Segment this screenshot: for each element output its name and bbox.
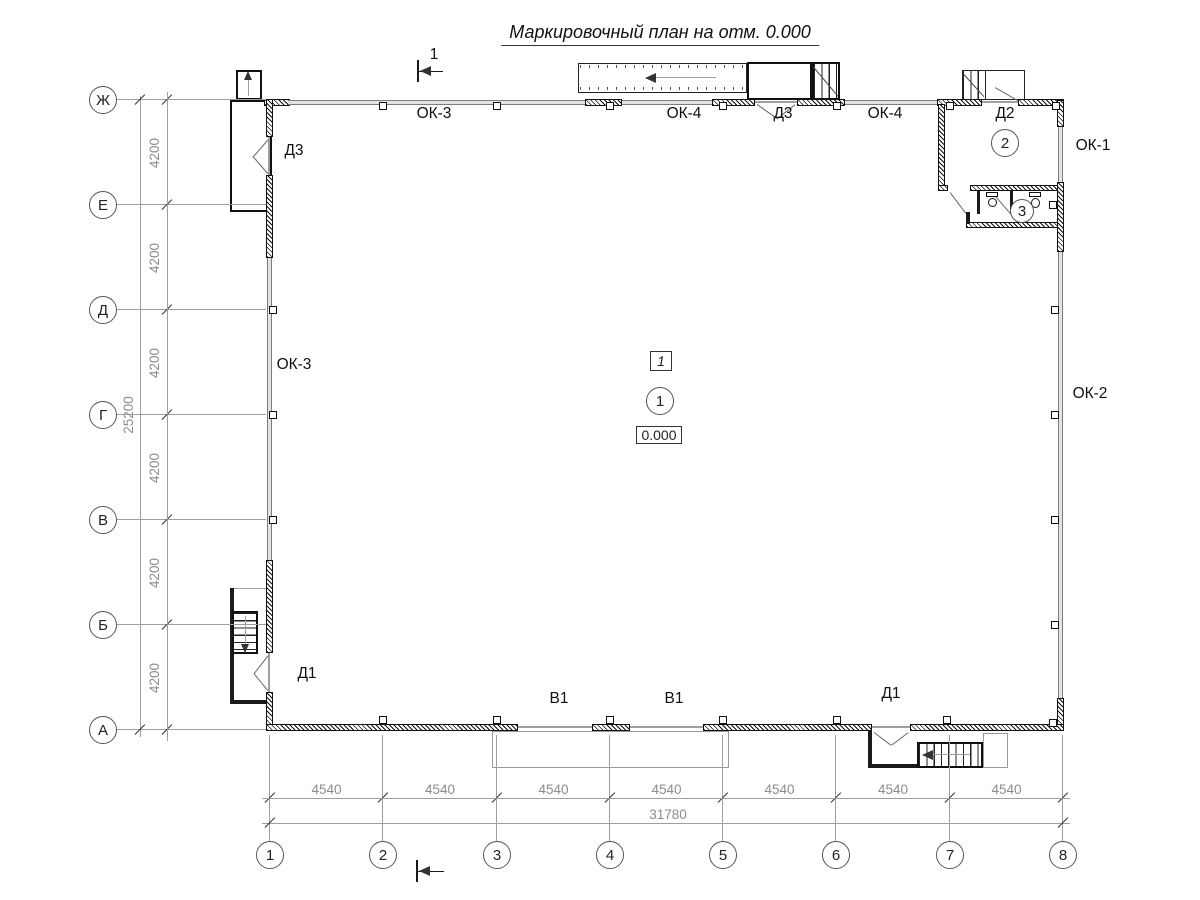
axis-col-bubble: 3: [483, 841, 511, 869]
label-d2-top: Д2: [995, 105, 1014, 123]
dock-platform: [747, 62, 812, 100]
door-leaf-d1-bottom: [891, 732, 909, 746]
door-threshold: [268, 137, 270, 175]
dim-col-spacing: 4540: [863, 781, 923, 799]
gate-threshold-v1: [518, 726, 592, 728]
column-marker: [269, 411, 277, 419]
column-marker: [493, 716, 501, 724]
dim-line-cols-total: [262, 823, 1070, 824]
dim-row-spacing: 4200: [146, 236, 164, 280]
column-marker: [493, 102, 501, 110]
dim-col-spacing: 4540: [297, 781, 357, 799]
label-d1-right: Д1: [881, 685, 900, 703]
dock-left-arrow-icon: [645, 73, 656, 83]
axis-row-bubble: А: [89, 716, 117, 744]
axis-row-bubble: Д: [89, 296, 117, 324]
label-ok1-right: ОК-1: [1076, 137, 1111, 155]
wall-pier: [910, 724, 1064, 731]
wall-pier: [592, 724, 630, 731]
axis-row-bubble: Е: [89, 191, 117, 219]
axis-col-line: [382, 735, 383, 841]
loading-dock-edge-ticks: [580, 65, 745, 68]
dim-col-spacing: 4540: [410, 781, 470, 799]
dim-row-spacing: 4200: [146, 551, 164, 595]
axis-col-bubble: 5: [709, 841, 737, 869]
door-threshold: [268, 653, 270, 692]
stairs-br-platform: [983, 733, 1008, 768]
section-arrow-icon: [419, 866, 430, 876]
axis-col-bubble: 1: [256, 841, 284, 869]
wall-pier: [1057, 182, 1064, 252]
axis-col-bubble: 7: [936, 841, 964, 869]
window-band-ok1-right: [1058, 127, 1063, 182]
wc-door-leaf: [949, 192, 966, 214]
section-arrow-icon: [420, 66, 431, 76]
room2-south-wall: [938, 185, 948, 191]
axis-row-bubble: В: [89, 506, 117, 534]
wall-pier: [266, 99, 273, 137]
column-marker: [1051, 621, 1059, 629]
door-threshold: [872, 726, 910, 728]
wall-pier: [266, 175, 273, 258]
door-leaf-d1-left: [254, 673, 269, 691]
axis-col-line: [949, 735, 950, 841]
drawing-title: Маркировочный план на отм. 0.000: [501, 22, 819, 46]
window-band-ok2-right: [1058, 252, 1063, 698]
stairs-br-left-arrow-icon: [922, 750, 933, 760]
label-d3-top: Д3: [773, 105, 792, 123]
column-marker: [269, 306, 277, 314]
loading-dock-edge-ticks: [580, 87, 745, 90]
room2-west-wall: [938, 104, 945, 191]
column-marker: [606, 102, 614, 110]
axis-col-bubble: 8: [1049, 841, 1077, 869]
label-ok3-top: ОК-3: [417, 105, 452, 123]
section-mark-label: 1: [430, 46, 439, 64]
column-marker: [1051, 306, 1059, 314]
column-marker: [946, 102, 954, 110]
axis-col-line: [835, 735, 836, 841]
column-marker: [719, 716, 727, 724]
dock-arrow-shaft: [652, 77, 716, 78]
label-v1-right: В1: [665, 690, 684, 708]
wall-pier: [703, 724, 872, 731]
axis-col-line: [1062, 735, 1063, 841]
window-band-ok3-left: [267, 258, 272, 560]
axis-col-line: [609, 735, 610, 841]
axis-col-line: [496, 735, 497, 841]
label-ok3-left: ОК-3: [277, 356, 312, 374]
column-marker: [719, 102, 727, 110]
wc-south-wall: [966, 222, 1058, 228]
column-marker: [379, 102, 387, 110]
door-leaf-d1-bottom: [874, 732, 892, 746]
column-marker: [269, 516, 277, 524]
column-marker: [606, 716, 614, 724]
wall-pier: [266, 560, 273, 653]
room-type-tag: 1: [650, 351, 672, 371]
column-marker: [1051, 411, 1059, 419]
wall-pier: [585, 99, 622, 106]
column-marker: [1049, 719, 1057, 727]
room-number-1: 1: [646, 387, 674, 415]
gate-apron: [492, 731, 729, 768]
axis-col-bubble: 2: [369, 841, 397, 869]
vestibule-br-south-wall: [868, 764, 917, 768]
stairs-bl-down-arrow-icon: [241, 644, 249, 653]
column-marker: [1051, 516, 1059, 524]
label-d1-left: Д1: [297, 665, 316, 683]
label-d3-left: Д3: [284, 142, 303, 160]
vestibule-br-west-wall: [868, 731, 872, 768]
column-marker: [833, 102, 841, 110]
stair-vestibule-north-edge: [234, 588, 266, 589]
dim-row-spacing: 4200: [146, 131, 164, 175]
stair-vestibule-south-wall: [230, 700, 268, 704]
column-marker: [1052, 102, 1060, 110]
wc-wall-stub: [966, 212, 970, 224]
dim-row-spacing: 4200: [146, 656, 164, 700]
dim-row-spacing: 4200: [146, 446, 164, 490]
porch-up-arrow-icon: [244, 71, 252, 80]
axis-col-line: [269, 735, 270, 841]
column-marker: [943, 716, 951, 724]
dim-col-spacing: 4540: [750, 781, 810, 799]
floor-plan-drawing: Маркировочный план на отм. 0.000: [0, 0, 1200, 900]
label-ok4-top-right: ОК-4: [868, 105, 903, 123]
wall-pier: [266, 724, 518, 731]
gate-threshold-v1: [630, 726, 703, 728]
dim-line-rows-total: [140, 96, 141, 737]
axis-row-bubble: Ж: [89, 86, 117, 114]
elevation-mark: 0.000: [636, 426, 682, 444]
axis-col-line: [722, 735, 723, 841]
label-v1-left: В1: [550, 690, 569, 708]
label-ok4-top-left: ОК-4: [667, 105, 702, 123]
door-threshold: [755, 101, 797, 103]
axis-col-bubble: 6: [822, 841, 850, 869]
door-threshold: [982, 101, 1018, 103]
wc-stall-partition: [977, 191, 980, 214]
axis-row-bubble: Г: [89, 401, 117, 429]
dim-row-spacing: 4200: [146, 341, 164, 385]
dim-total-cols: 31780: [638, 806, 698, 824]
room-number-3: 3: [1010, 199, 1034, 223]
porch-arrow-shaft: [248, 79, 249, 96]
axis-col-bubble: 4: [596, 841, 624, 869]
toilet-icon: [988, 198, 997, 207]
dim-col-spacing: 4540: [637, 781, 697, 799]
dim-line-rows: [167, 92, 168, 741]
stairs-bl-arrow-shaft: [245, 616, 246, 646]
column-marker: [1049, 201, 1057, 209]
column-marker: [379, 716, 387, 724]
door-leaf-d1-left: [253, 655, 268, 674]
room2-south-wall: [970, 185, 1058, 191]
dim-col-spacing: 4540: [977, 781, 1037, 799]
dim-col-spacing: 4540: [524, 781, 584, 799]
toilet-icon: [1029, 192, 1041, 197]
label-ok2-right: ОК-2: [1073, 385, 1108, 403]
room-number-2: 2: [991, 129, 1019, 157]
toilet-icon: [986, 192, 998, 197]
column-marker: [833, 716, 841, 724]
axis-row-bubble: Б: [89, 611, 117, 639]
